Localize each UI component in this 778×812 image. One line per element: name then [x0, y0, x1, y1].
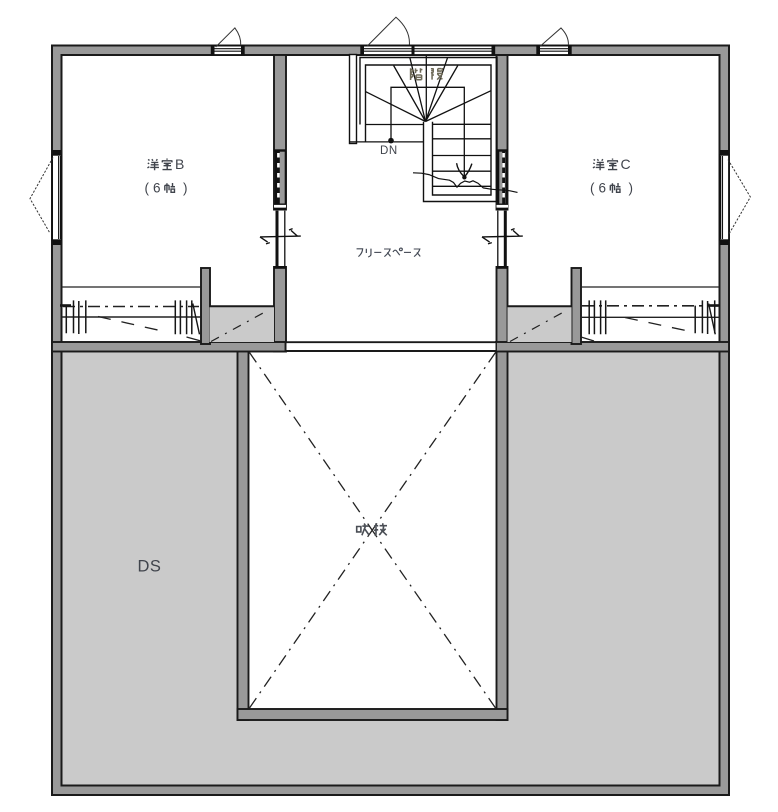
svg-text:C: C	[621, 156, 631, 172]
svg-text:DN: DN	[380, 145, 398, 157]
svg-text:6: 6	[599, 181, 607, 196]
svg-text:): )	[183, 181, 188, 196]
svg-text:): )	[629, 181, 634, 196]
svg-text:B: B	[175, 156, 184, 172]
svg-text:6: 6	[153, 181, 161, 196]
svg-text:(: (	[145, 181, 150, 196]
svg-text:(: (	[590, 181, 595, 196]
svg-text:DS: DS	[138, 558, 162, 576]
